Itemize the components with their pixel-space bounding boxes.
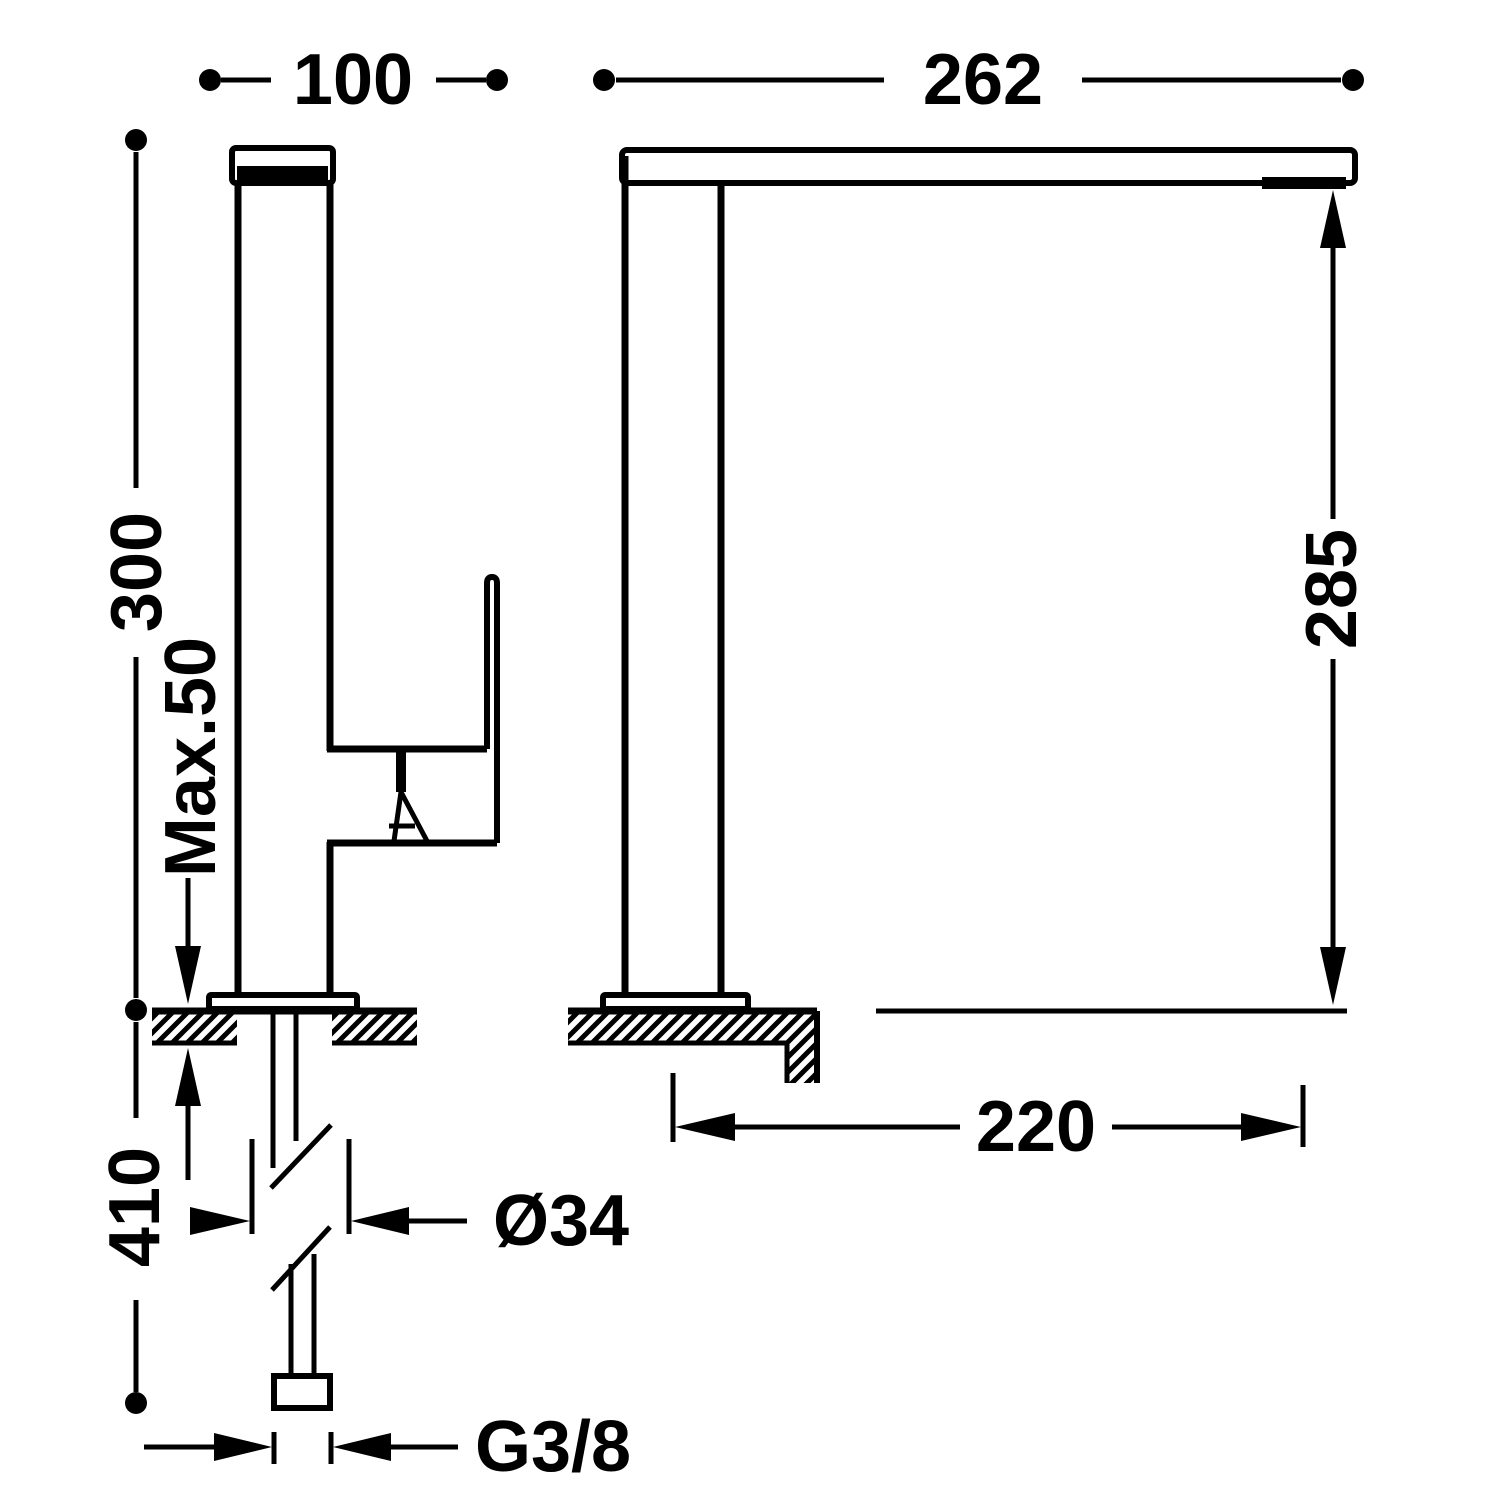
handle-pivot-linkage [389, 792, 427, 841]
dim-max50-arrow-down [175, 946, 201, 1004]
front-counter-hatch-left [152, 1014, 237, 1043]
dim-max50: Max.50 [151, 637, 231, 1180]
dim-410-label: 410 [95, 1147, 175, 1267]
dim-100: 100 [199, 40, 508, 120]
dim-300-label: 300 [97, 512, 177, 632]
pipe-break-diagonal-upper [271, 1125, 331, 1188]
dim-262-label: 262 [923, 40, 1043, 120]
side-aerator-outlet [1262, 177, 1346, 189]
dim-410: 410 [95, 1022, 175, 1414]
front-base-plate [209, 995, 357, 1009]
dim-100-dot-left [199, 69, 221, 91]
dim-262-dot-right [1342, 69, 1364, 91]
dim-d34: Ø34 [190, 1139, 629, 1261]
dim-285-arrow-down [1320, 947, 1346, 1005]
dim-300-dot-bottom [125, 999, 147, 1021]
side-spout-bar [622, 150, 1355, 183]
supply-fitting [274, 1376, 330, 1408]
dim-285-arrow-up [1320, 190, 1346, 248]
dim-300-dot-top [125, 129, 147, 151]
front-spout-cap-band [237, 166, 328, 183]
handle-lever-blade [487, 577, 497, 843]
drawing-canvas: 100 262 300 Max.50 410 [0, 0, 1500, 1500]
side-view [568, 150, 1355, 1083]
dim-g38-ticks [274, 1432, 331, 1464]
dim-d34-arrow-left [190, 1207, 250, 1235]
dim-262: 262 [593, 40, 1364, 120]
dim-285: 285 [876, 190, 1372, 1011]
dim-g38-arrow-right [333, 1433, 391, 1461]
dim-100-dot-right [486, 69, 508, 91]
dim-g38: G3/8 [144, 1407, 631, 1487]
dim-300: 300 [97, 129, 177, 1021]
dim-d34-label: Ø34 [493, 1181, 629, 1261]
dim-g38-label: G3/8 [475, 1407, 631, 1487]
dim-410-dot-bottom [125, 1392, 147, 1414]
dim-d34-arrow-right [351, 1207, 409, 1235]
pipe-break-diagonal-lower [272, 1227, 330, 1290]
dim-262-dot-left [593, 69, 615, 91]
dimensions: 100 262 300 Max.50 410 [95, 40, 1372, 1487]
faucet-dimension-drawing: 100 262 300 Max.50 410 [0, 0, 1500, 1500]
side-counter-hatch-leg [787, 1043, 817, 1083]
dim-max50-label: Max.50 [151, 637, 231, 877]
side-base-plate [603, 995, 748, 1009]
front-counter-hatch-right [332, 1014, 417, 1043]
dim-220-arrow-right [1241, 1113, 1301, 1141]
dim-220-arrow-left [675, 1113, 735, 1141]
dim-220: 220 [673, 1073, 1303, 1167]
dim-220-label: 220 [976, 1087, 1096, 1167]
dim-285-label: 285 [1292, 529, 1372, 649]
dim-g38-arrow-left [214, 1433, 272, 1461]
side-counter-hatch-slab [568, 1014, 817, 1043]
dim-d34-ticks [252, 1139, 349, 1234]
dim-max50-arrow-up [175, 1048, 201, 1106]
dim-100-label: 100 [293, 40, 413, 120]
